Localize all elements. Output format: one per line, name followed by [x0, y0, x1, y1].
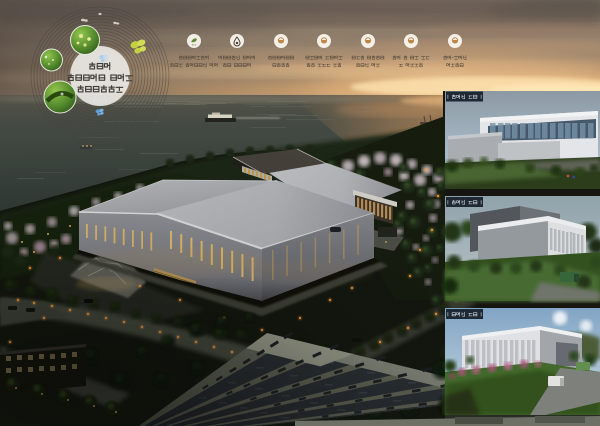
svg-text:eco: eco	[192, 43, 197, 47]
